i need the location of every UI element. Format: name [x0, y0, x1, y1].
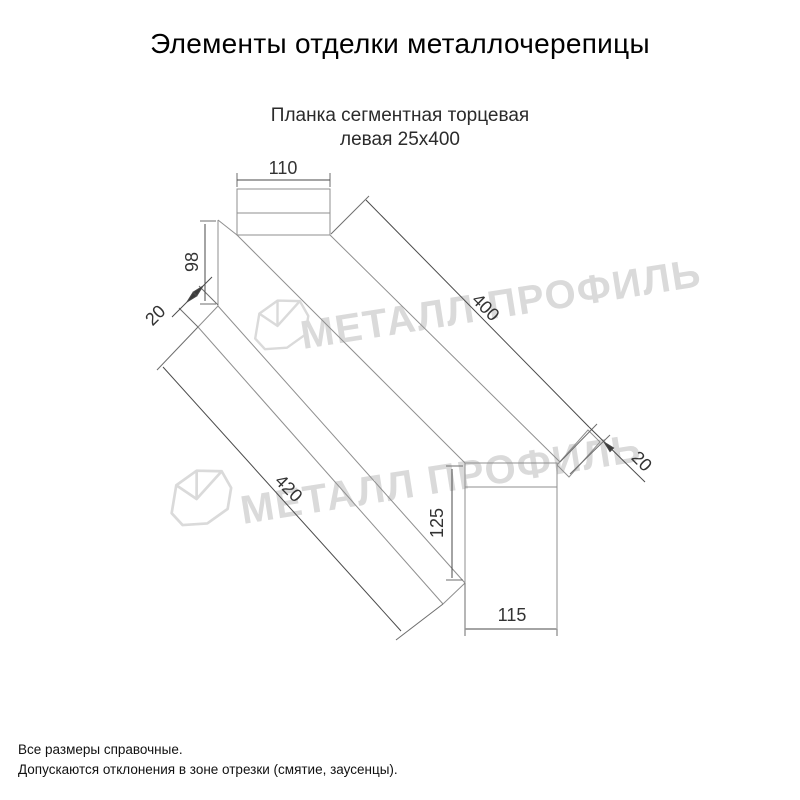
dim-flange-width: 110: [269, 158, 298, 178]
footer-note-line2: Допускаются отклонения в зоне отрезки (с…: [18, 760, 778, 780]
dim-bottom-width: 115: [498, 605, 527, 625]
dim-right-height: 125: [427, 508, 447, 538]
metall-profil-logo-icon: [166, 466, 236, 529]
extension-lines: [157, 173, 610, 640]
technical-drawing: МЕТАЛЛ ПРОФИЛЬ МЕТАЛЛ ПРОФИЛЬ: [0, 0, 800, 800]
dimension-lines: [163, 180, 645, 631]
footer-note-line1: Все размеры справочные.: [18, 740, 778, 760]
footer-notes: Все размеры справочные. Допускаются откл…: [18, 740, 778, 780]
catalog-page: Элементы отделки металлочерепицы Планка …: [0, 0, 800, 800]
part-outline: [198, 189, 600, 629]
dim-left-hem: 20: [141, 301, 169, 329]
watermark-text: МЕТАЛЛ ПРОФИЛЬ: [298, 251, 705, 358]
dim-left-height: 98: [182, 252, 202, 272]
left-flange-face: [237, 189, 330, 235]
watermark-lower: МЕТАЛЛ ПРОФИЛЬ: [166, 426, 645, 533]
